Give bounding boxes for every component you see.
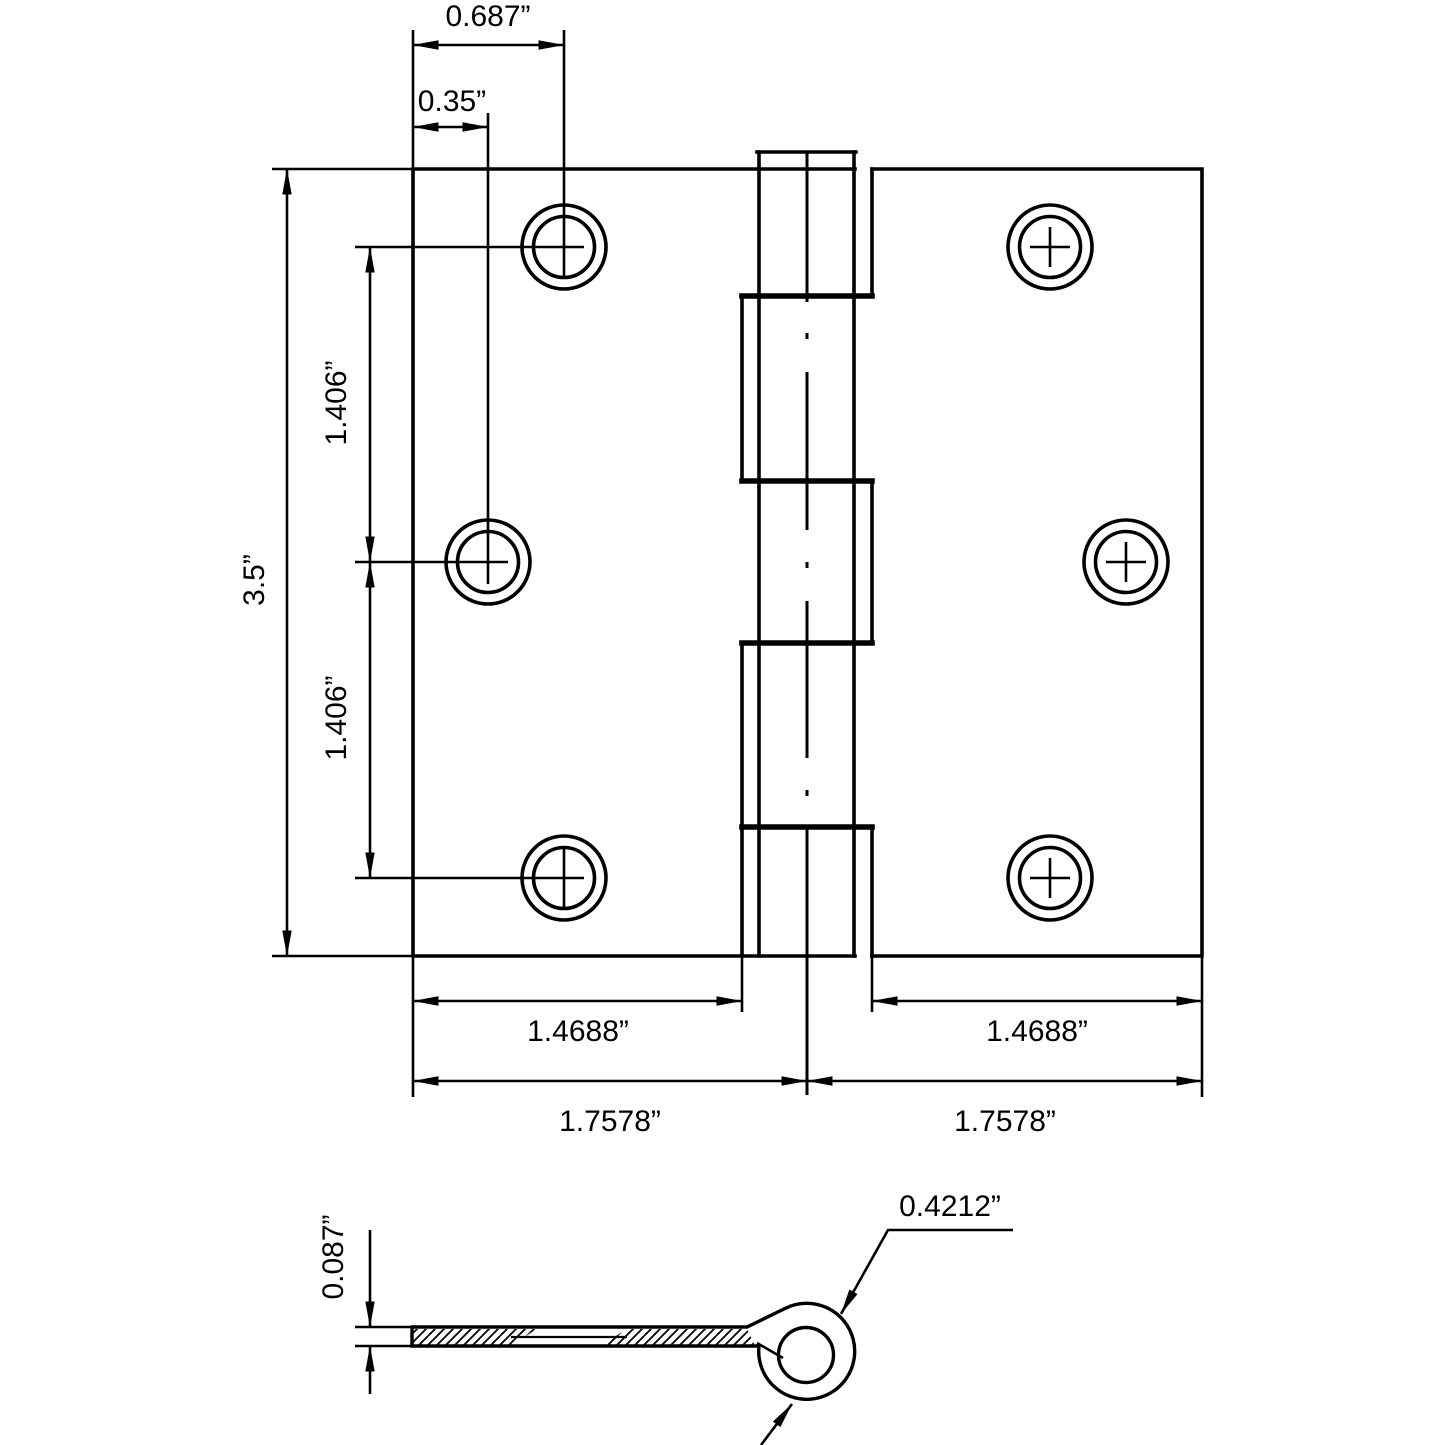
knuckle-diameter-leader: 0.4212” — [761, 1190, 1013, 1445]
crosshair — [1106, 542, 1146, 582]
drawing-canvas: 0.687” 0.35” 3.5” 1.406” 1.406” 1.4688” … — [0, 0, 1445, 1445]
crosshair — [1030, 227, 1070, 267]
leader-knuckle-bottom — [761, 1404, 792, 1445]
label-leaf-width-left: 1.4688” — [527, 1015, 629, 1048]
crosshair — [1030, 858, 1070, 898]
label-knuckle-diameter: 0.4212” — [899, 1190, 1001, 1223]
knuckle-pin-hole — [779, 1328, 834, 1383]
thickness-dimension: 0.087” — [317, 1214, 412, 1394]
label-edge-inset: 0.35” — [418, 85, 486, 118]
hinge-technical-drawing: 0.687” 0.35” 3.5” 1.406” 1.406” 1.4688” … — [0, 0, 1445, 1445]
ext-thickness — [355, 1327, 412, 1346]
leaf-cross-section — [412, 1303, 855, 1399]
label-hole-spacing-lower: 1.406” — [320, 675, 353, 760]
label-hole-offset-top: 0.687” — [445, 0, 530, 33]
leader-knuckle-diameter — [841, 1230, 1013, 1314]
knuckle-barrel — [742, 152, 872, 1095]
front-view: 0.687” 0.35” 3.5” 1.406” 1.406” 1.4688” … — [238, 0, 1202, 1138]
slab-top-and-knuckle-outer — [412, 1303, 855, 1399]
label-hole-spacing-upper: 1.406” — [320, 360, 353, 445]
screw-hole-bottom-right — [1008, 836, 1092, 920]
label-thickness: 0.087” — [317, 1214, 350, 1299]
label-half-width-left: 1.7578” — [559, 1105, 661, 1138]
label-height: 3.5” — [238, 554, 271, 606]
label-half-width-right: 1.7578” — [954, 1105, 1056, 1138]
side-view: 0.087” 0.4212” — [317, 1190, 1013, 1445]
screw-hole-mid-right — [1084, 520, 1168, 604]
label-leaf-width-right: 1.4688” — [986, 1015, 1088, 1048]
screw-hole-top-right — [1008, 205, 1092, 289]
